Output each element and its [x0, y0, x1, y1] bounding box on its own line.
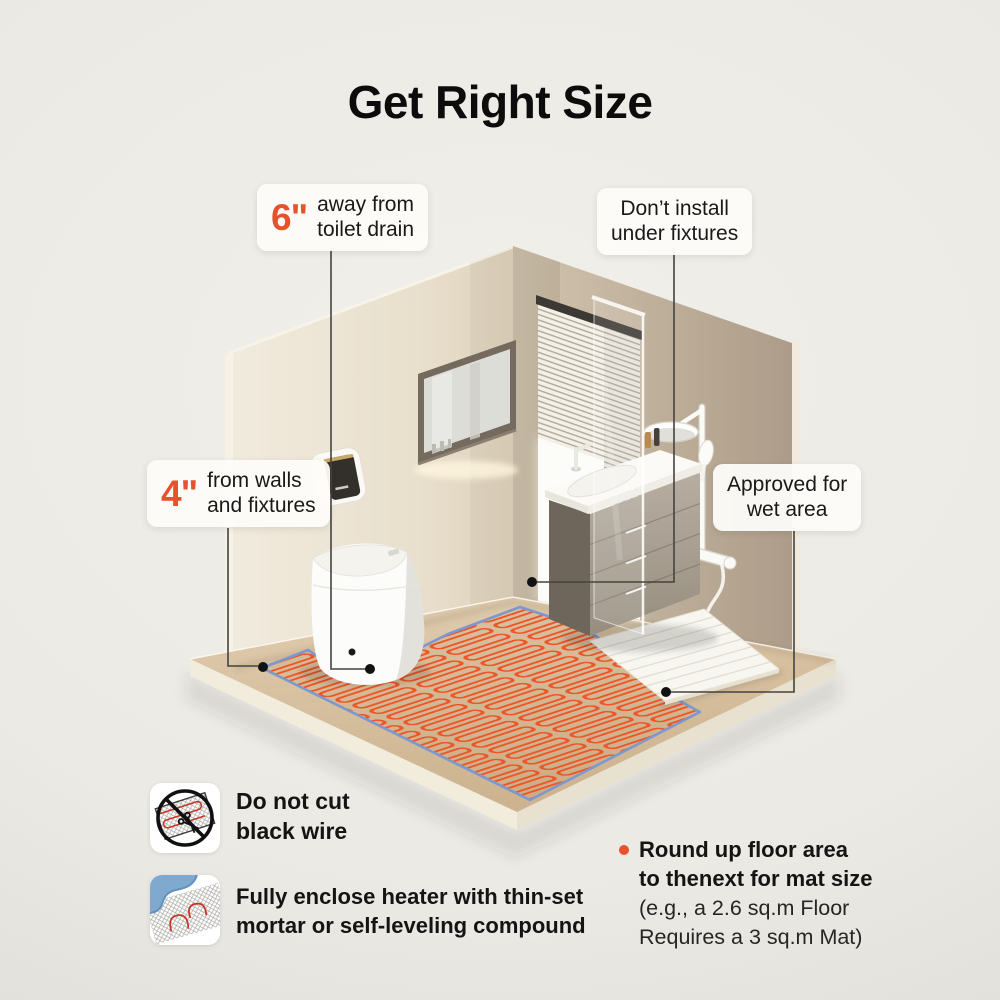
page-title: Get Right Size	[0, 75, 1000, 129]
callout-walls: 4" from walls and fixtures	[147, 460, 330, 527]
callout-toilet-number: 6"	[271, 197, 307, 239]
callout-fixtures-line1: Don’t install	[611, 197, 738, 222]
note-no-cut-line2: black wire	[236, 816, 350, 846]
callout-fixtures: Don’t install under fixtures	[597, 188, 752, 255]
note-round-up-reg2: Requires a 3 sq.m Mat)	[619, 923, 872, 952]
callout-fixtures-line2: under fixtures	[611, 222, 738, 247]
note-round-up-reg1: (e.g., a 2.6 sq.m Floor	[619, 894, 872, 923]
callout-walls-line2: and fixtures	[207, 494, 316, 519]
infographic-page: Get Right Size 6" away from toilet drain…	[0, 0, 1000, 1000]
no-cut-black-wire-icon	[150, 783, 220, 853]
note-enclose: Fully enclose heater with thin-set morta…	[150, 875, 586, 945]
note-round-up: Round up floor area to thenext for mat s…	[619, 835, 872, 952]
callout-walls-number: 4"	[161, 473, 197, 515]
note-enclose-line2: mortar or self-leveling compound	[236, 911, 586, 940]
note-round-up-bold2: to thenext for mat size	[619, 864, 872, 893]
note-enclose-line1: Fully enclose heater with thin-set	[236, 882, 586, 911]
callout-walls-line1: from walls	[207, 469, 316, 494]
callout-wet-line2: wet area	[727, 498, 847, 523]
note-round-up-bold1: Round up floor area	[639, 835, 848, 864]
note-no-cut: Do not cut black wire	[150, 783, 350, 853]
bullet-dot	[619, 845, 629, 855]
note-no-cut-line1: Do not cut	[236, 786, 350, 816]
thin-set-mortar-icon	[150, 875, 220, 945]
callout-toilet-line1: away from	[317, 193, 414, 218]
callout-wet-line1: Approved for	[727, 473, 847, 498]
shower-glass-panel	[592, 297, 645, 634]
toilet	[299, 543, 431, 686]
callout-toilet-line2: toilet drain	[317, 218, 414, 243]
callout-wet-area: Approved for wet area	[713, 464, 861, 531]
callout-toilet-drain: 6" away from toilet drain	[257, 184, 428, 251]
